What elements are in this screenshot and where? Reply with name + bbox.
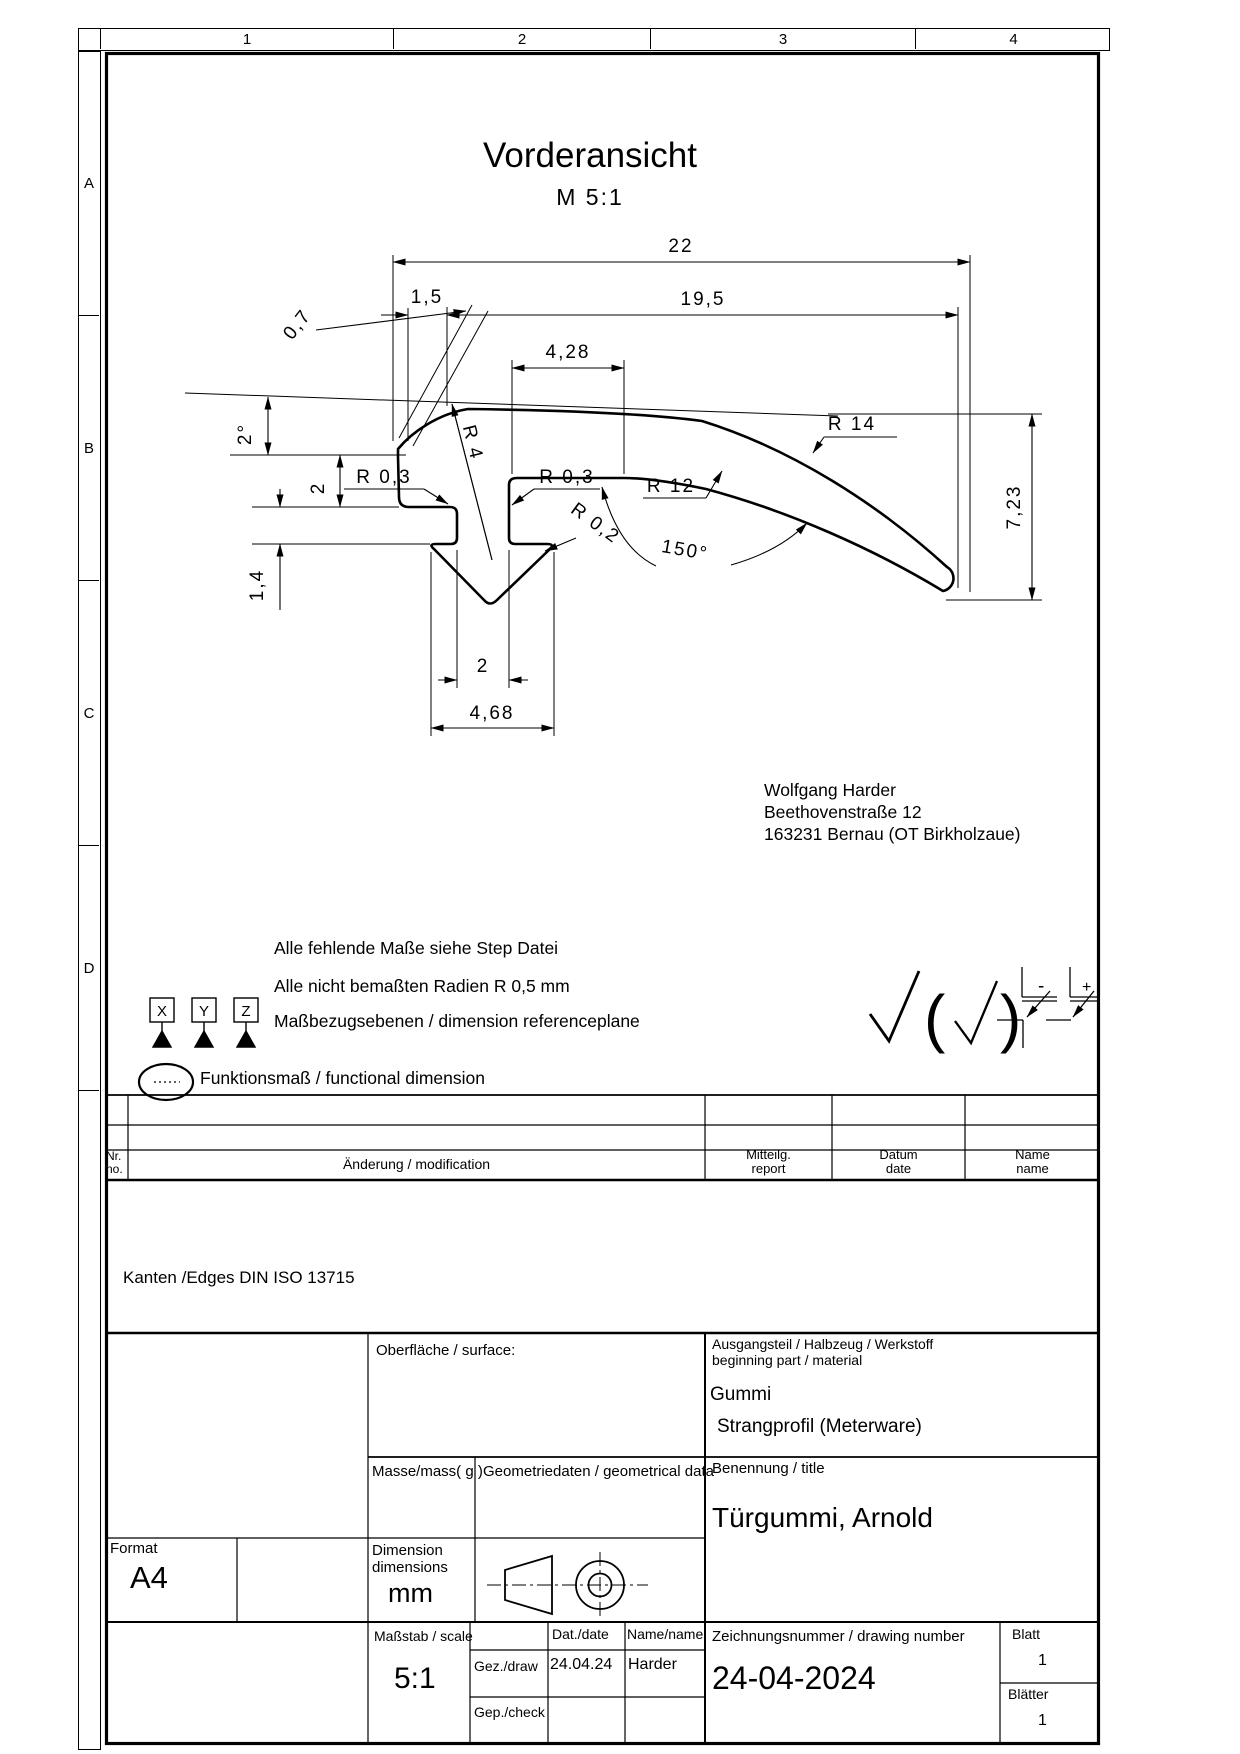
- dim-19-5: 19,5: [681, 289, 726, 310]
- surface-symbols: ( ) - +: [870, 967, 1097, 1054]
- dim-4-68: 4,68: [470, 703, 515, 724]
- datum-x-label: X: [157, 1003, 167, 1020]
- dim-r12: R 12: [647, 476, 695, 497]
- surface-check-icon: [870, 971, 919, 1041]
- dim-22: 22: [668, 236, 693, 257]
- sheet-frame: [107, 54, 1099, 1744]
- dim-4-28: 4,28: [546, 342, 591, 363]
- paren-open: (: [924, 982, 945, 1054]
- dim-angle-2: 2°: [235, 423, 256, 445]
- table-lines: [105, 1095, 1100, 1745]
- datum-triangle-x: [153, 1031, 171, 1047]
- dim-2-bottom: 2: [477, 656, 490, 677]
- datum-triangle-z: [237, 1031, 255, 1047]
- edge-minus-sign: -: [1038, 976, 1044, 997]
- dim-1-5: 1,5: [411, 287, 443, 308]
- seal-profile-drawing: 22 19,5 1,5 4,28 0,7 2° 2 1,4 R 0,3 R 0,…: [185, 236, 1042, 736]
- edge-plus-sign: +: [1082, 979, 1091, 996]
- dim-angle-150: 150°: [660, 536, 710, 565]
- dimension-labels: 22 19,5 1,5 4,28 0,7 2° 2 1,4 R 0,3 R 0,…: [235, 236, 1025, 724]
- surface-check-optional-icon: [955, 981, 997, 1043]
- vector-layer: 22 19,5 1,5 4,28 0,7 2° 2 1,4 R 0,3 R 0,…: [0, 0, 1240, 1754]
- dim-0-7: 0,7: [279, 305, 316, 343]
- datum-symbols: X Y Z: [150, 998, 258, 1047]
- paren-close: ): [1000, 982, 1021, 1054]
- dim-r14: R 14: [828, 414, 876, 435]
- edge-symbol-plus: +: [1046, 967, 1097, 1020]
- datum-y-label: Y: [199, 1003, 209, 1020]
- extension-lines: [185, 255, 1042, 736]
- dim-2-left: 2: [308, 482, 329, 495]
- projection-symbol: [487, 1552, 648, 1618]
- dim-r03-right: R 0,3: [539, 467, 594, 488]
- dim-r03-left: R 0,3: [356, 467, 411, 488]
- dim-1-4: 1,4: [247, 569, 268, 601]
- drawing-sheet: { "view": { "title": "Vorderansicht", "s…: [0, 0, 1240, 1754]
- datum-triangle-y: [195, 1031, 213, 1047]
- dim-7-23: 7,23: [1004, 485, 1025, 530]
- datum-z-label: Z: [241, 1003, 250, 1020]
